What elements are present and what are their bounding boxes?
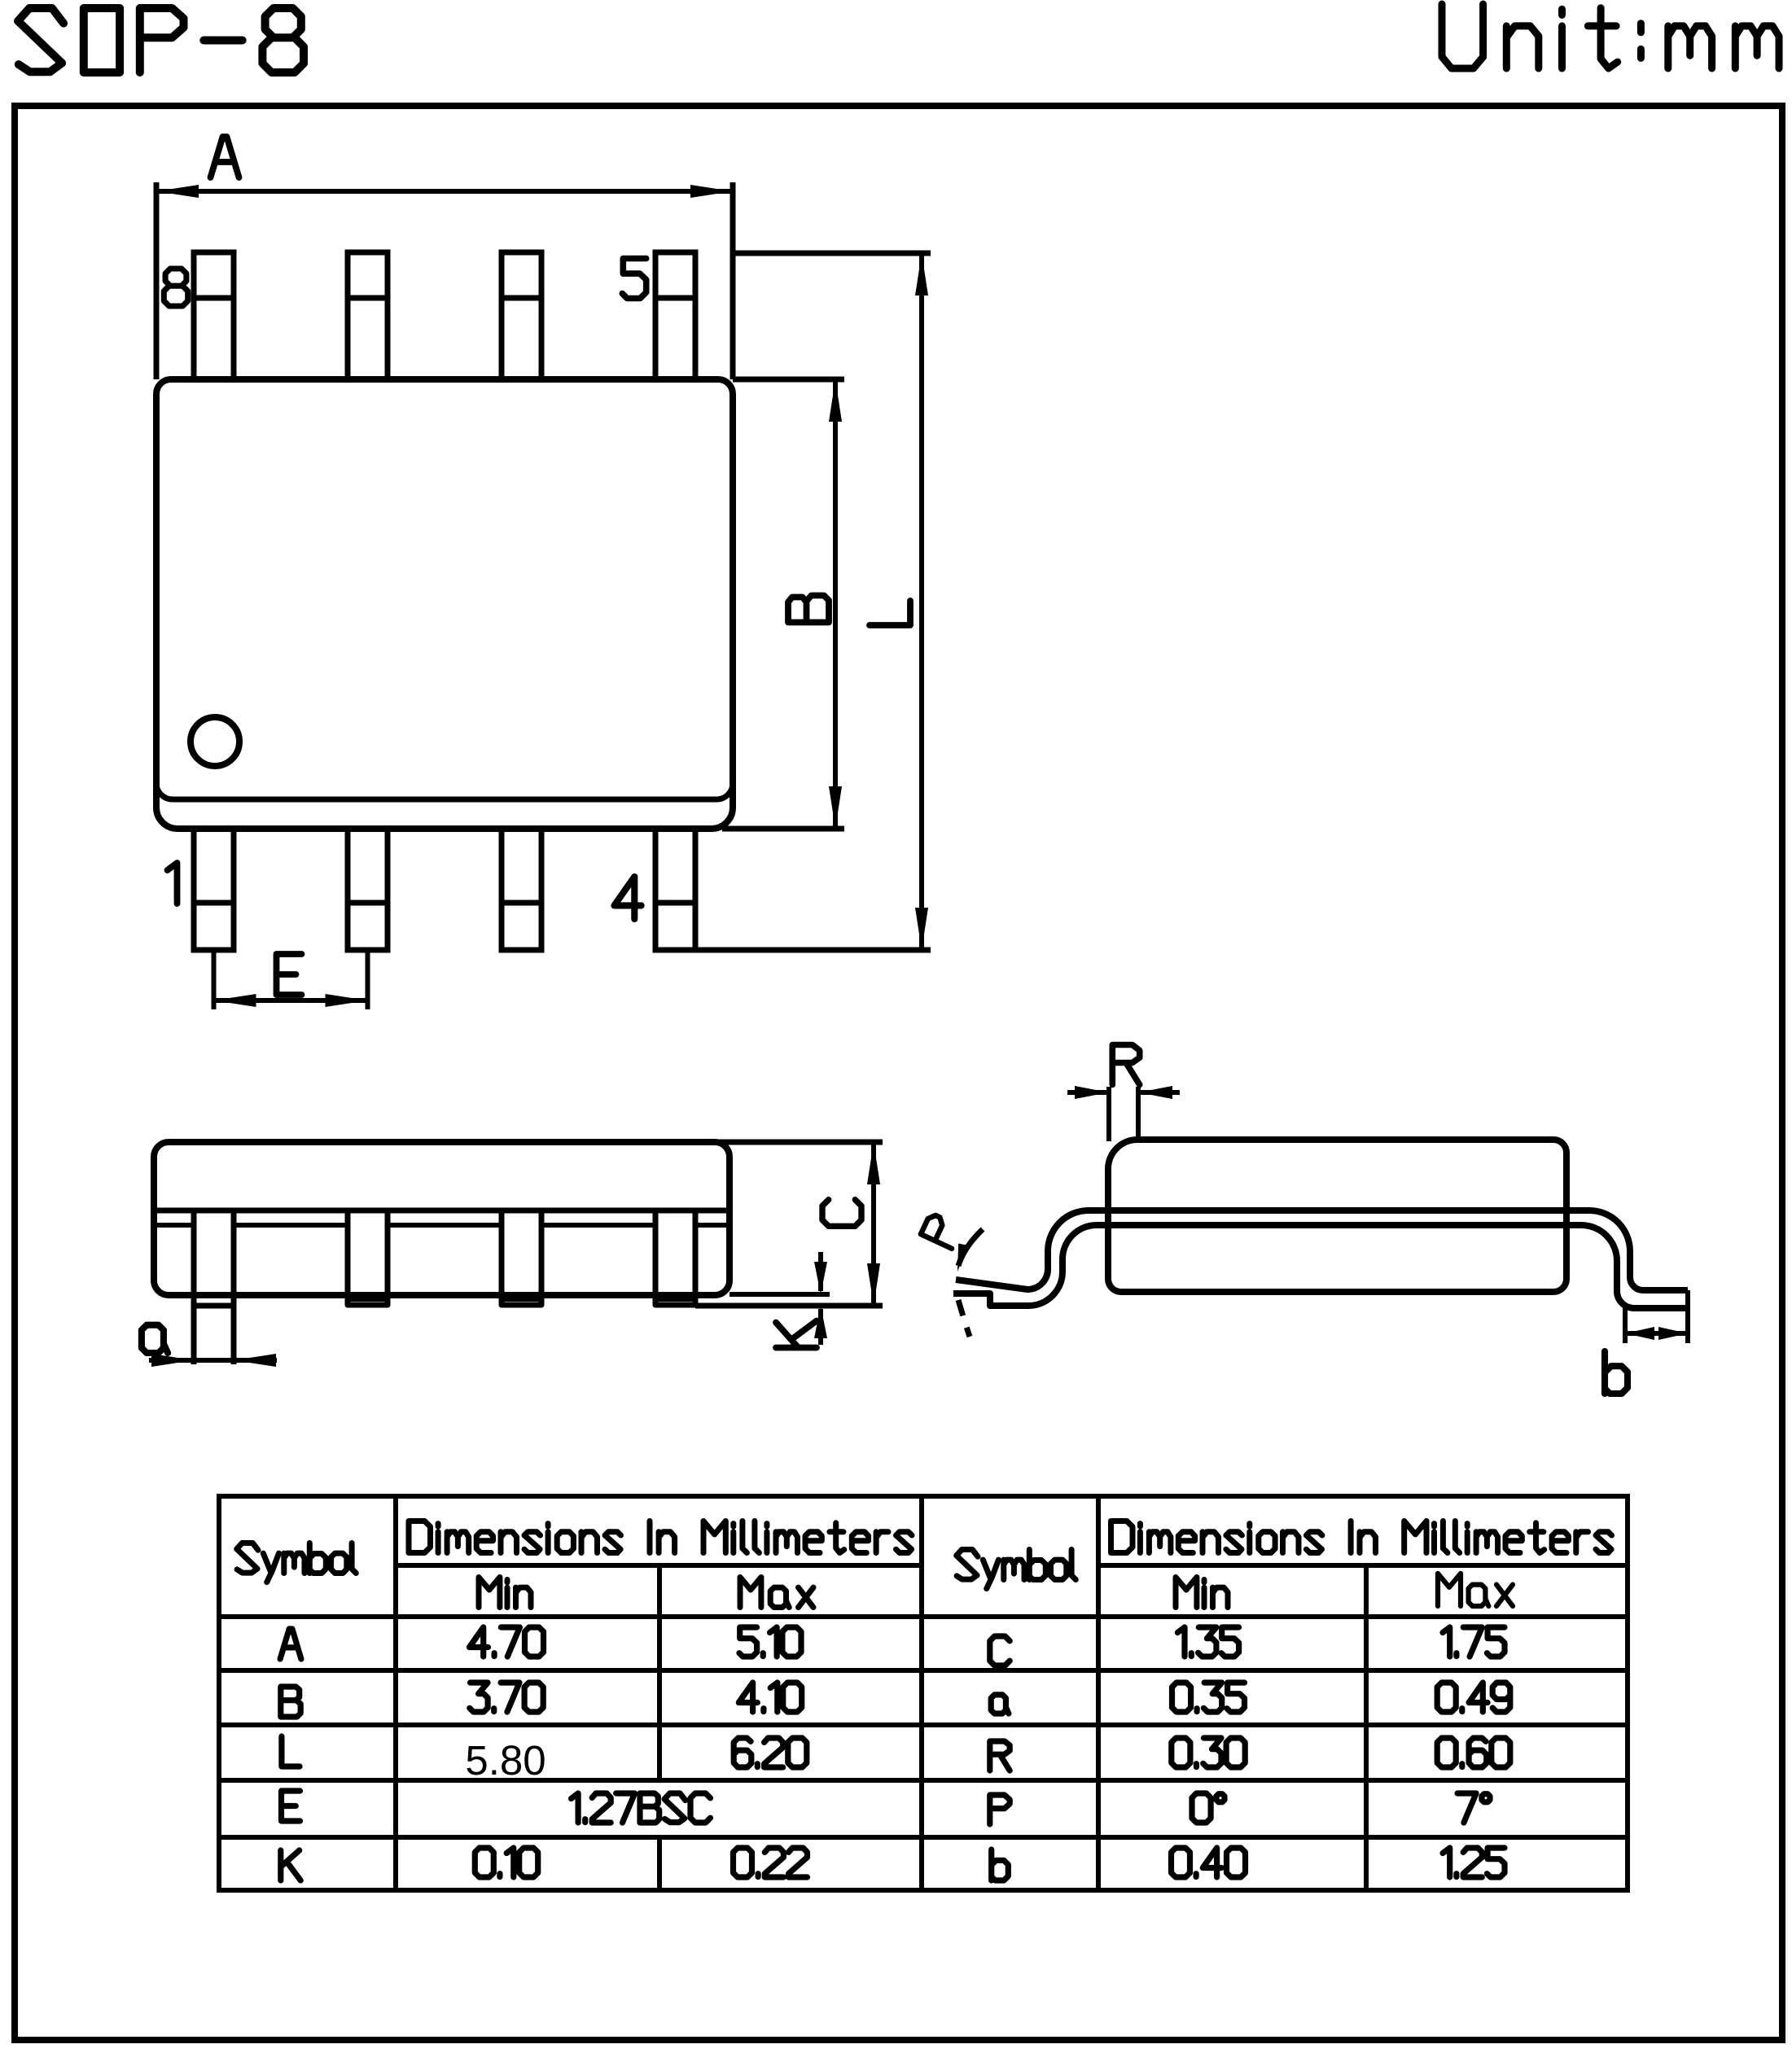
svg-text:5.80: 5.80: [465, 1737, 545, 1784]
